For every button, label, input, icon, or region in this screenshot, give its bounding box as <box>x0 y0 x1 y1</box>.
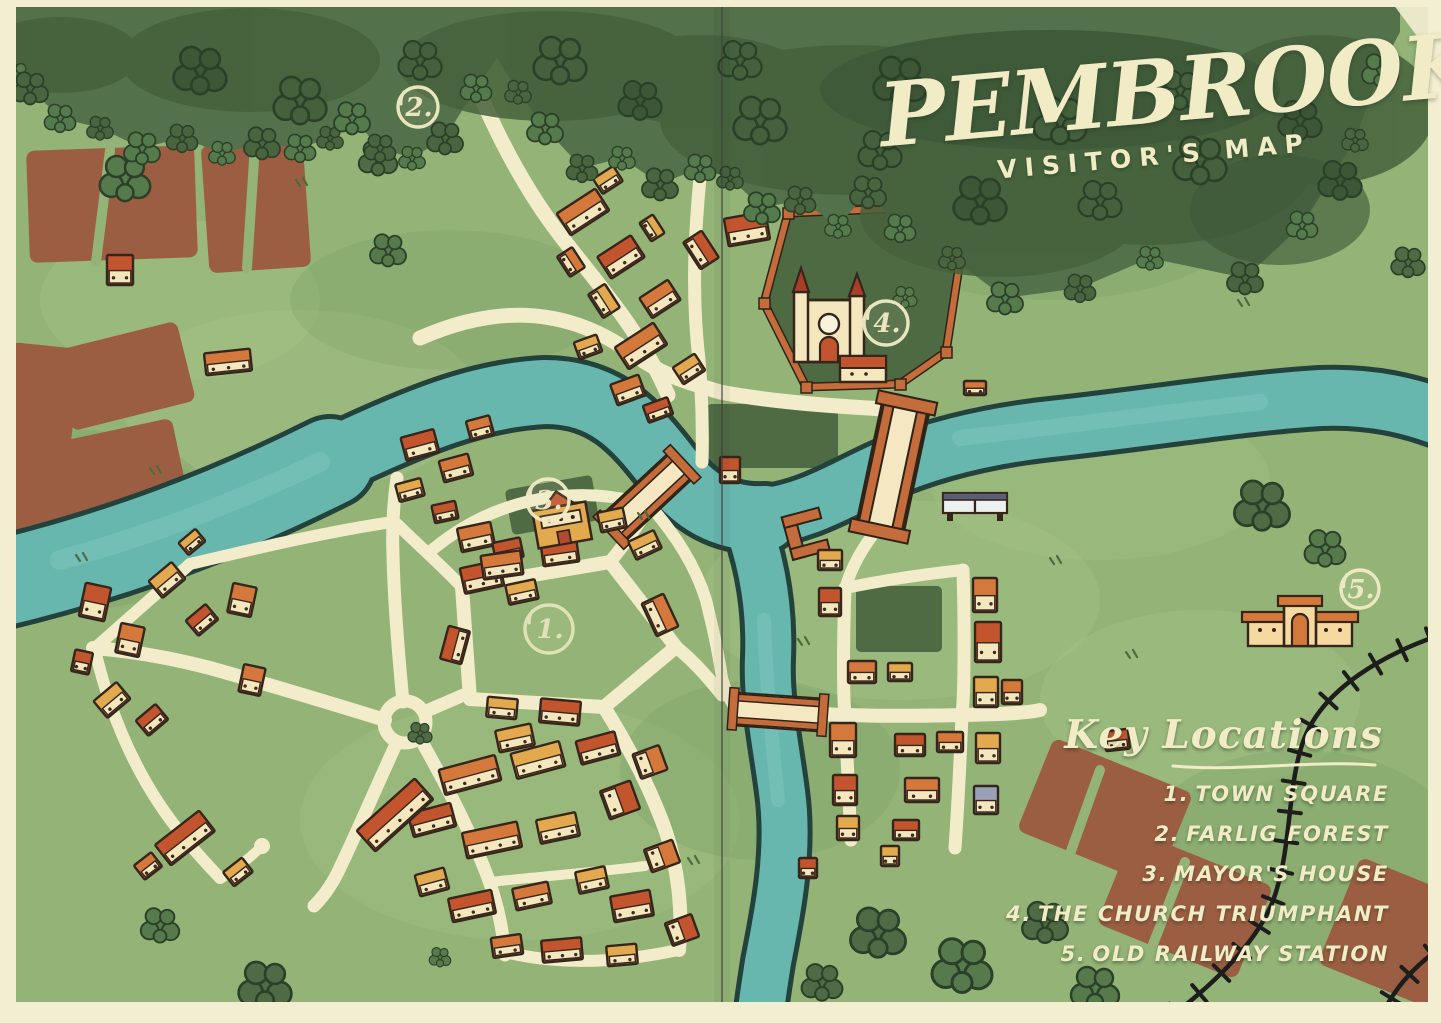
marker-old-railway-station: 5. <box>1341 570 1379 608</box>
building <box>597 508 627 533</box>
building <box>905 778 939 802</box>
visitor-map: 1.2.3.4.5. PEMBROOK VISITOR'S MAP Key Lo… <box>0 0 1441 1023</box>
building <box>610 890 654 923</box>
building <box>964 381 986 395</box>
building <box>833 775 857 805</box>
svg-text:2.: 2. <box>404 93 432 123</box>
building <box>606 944 638 967</box>
building <box>818 550 842 570</box>
building <box>541 937 583 962</box>
building <box>1002 680 1022 704</box>
tree <box>1022 902 1068 943</box>
tree <box>932 939 992 993</box>
building <box>799 858 817 878</box>
marker-church-triumphant: 4. <box>864 301 908 345</box>
building <box>937 732 963 752</box>
building <box>539 698 581 725</box>
building <box>974 786 998 814</box>
building <box>466 415 494 441</box>
building <box>204 349 252 376</box>
building <box>974 677 998 707</box>
building <box>830 723 856 757</box>
svg-text:5.: 5. <box>1347 575 1374 605</box>
tree <box>1234 481 1289 530</box>
building <box>227 583 257 617</box>
tree <box>141 908 179 942</box>
building <box>107 255 133 285</box>
building <box>973 578 997 612</box>
svg-text:4.: 4. <box>873 309 900 339</box>
tree <box>802 964 843 1001</box>
building <box>819 588 841 616</box>
building <box>881 846 899 866</box>
building <box>975 622 1001 662</box>
tree <box>408 723 432 745</box>
building <box>575 866 609 894</box>
tree <box>370 234 406 266</box>
building <box>893 820 919 840</box>
marker-farlig-forest: 2. <box>398 87 438 127</box>
building <box>888 663 912 681</box>
svg-text:3.: 3. <box>535 486 562 516</box>
building <box>895 734 925 756</box>
building <box>486 697 518 720</box>
building <box>481 550 524 579</box>
building <box>848 661 876 683</box>
building <box>431 501 458 524</box>
marker-mayors-house: 3. <box>527 479 569 521</box>
tree <box>1305 530 1346 567</box>
building <box>238 664 265 696</box>
svg-text:1.: 1. <box>536 615 563 645</box>
marker-town-square: 1. <box>525 605 573 653</box>
map-canvas: 1.2.3.4.5. <box>0 0 1441 1023</box>
tree <box>1391 247 1425 277</box>
building <box>115 623 145 657</box>
tree <box>429 948 451 967</box>
tree <box>850 908 905 957</box>
building <box>976 733 1000 763</box>
building <box>71 649 93 674</box>
building <box>1104 729 1130 751</box>
building <box>79 583 112 622</box>
building <box>491 934 523 958</box>
building <box>837 816 859 840</box>
